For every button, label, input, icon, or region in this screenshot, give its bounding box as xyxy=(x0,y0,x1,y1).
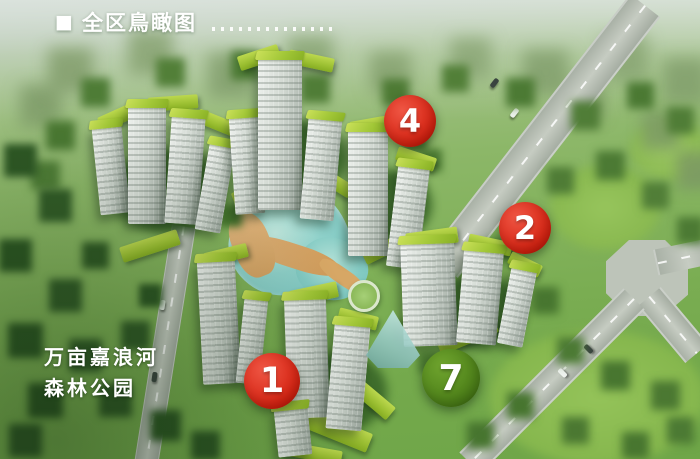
trees-dark-layer xyxy=(0,0,1,1)
unit-marker-1: 1 xyxy=(244,353,300,409)
building-tower xyxy=(400,241,458,347)
title-text: 全区鳥瞰图 xyxy=(82,7,197,37)
building-tower xyxy=(128,106,166,224)
building-tower xyxy=(91,125,130,216)
title-bullet-icon: ■ xyxy=(55,13,75,32)
title-dotted-line xyxy=(212,27,338,31)
aerial-rendering: ■ 全区鳥瞰图 万亩嘉浪河 森林公园 4217 xyxy=(0,0,700,459)
building-tower xyxy=(197,259,241,385)
building-tower xyxy=(348,130,388,256)
unit-marker-4: 4 xyxy=(384,95,436,147)
lawn-patch xyxy=(550,165,660,250)
building-tower-tall xyxy=(258,58,302,210)
building-tower xyxy=(274,406,313,457)
unit-marker-2: 2 xyxy=(499,202,551,254)
park-label: 万亩嘉浪河 森林公园 xyxy=(44,342,159,404)
lawn-patch xyxy=(630,120,700,180)
park-label-line1: 万亩嘉浪河 xyxy=(44,342,159,373)
unit-marker-7: 7 xyxy=(422,349,480,407)
park-label-line2: 森林公园 xyxy=(44,373,159,404)
car xyxy=(509,108,519,119)
circular-garden xyxy=(348,280,380,312)
page-title: ■ 全区鳥瞰图 xyxy=(55,7,197,37)
building-tower xyxy=(456,248,504,345)
building-tower xyxy=(497,266,537,348)
car xyxy=(489,78,499,89)
